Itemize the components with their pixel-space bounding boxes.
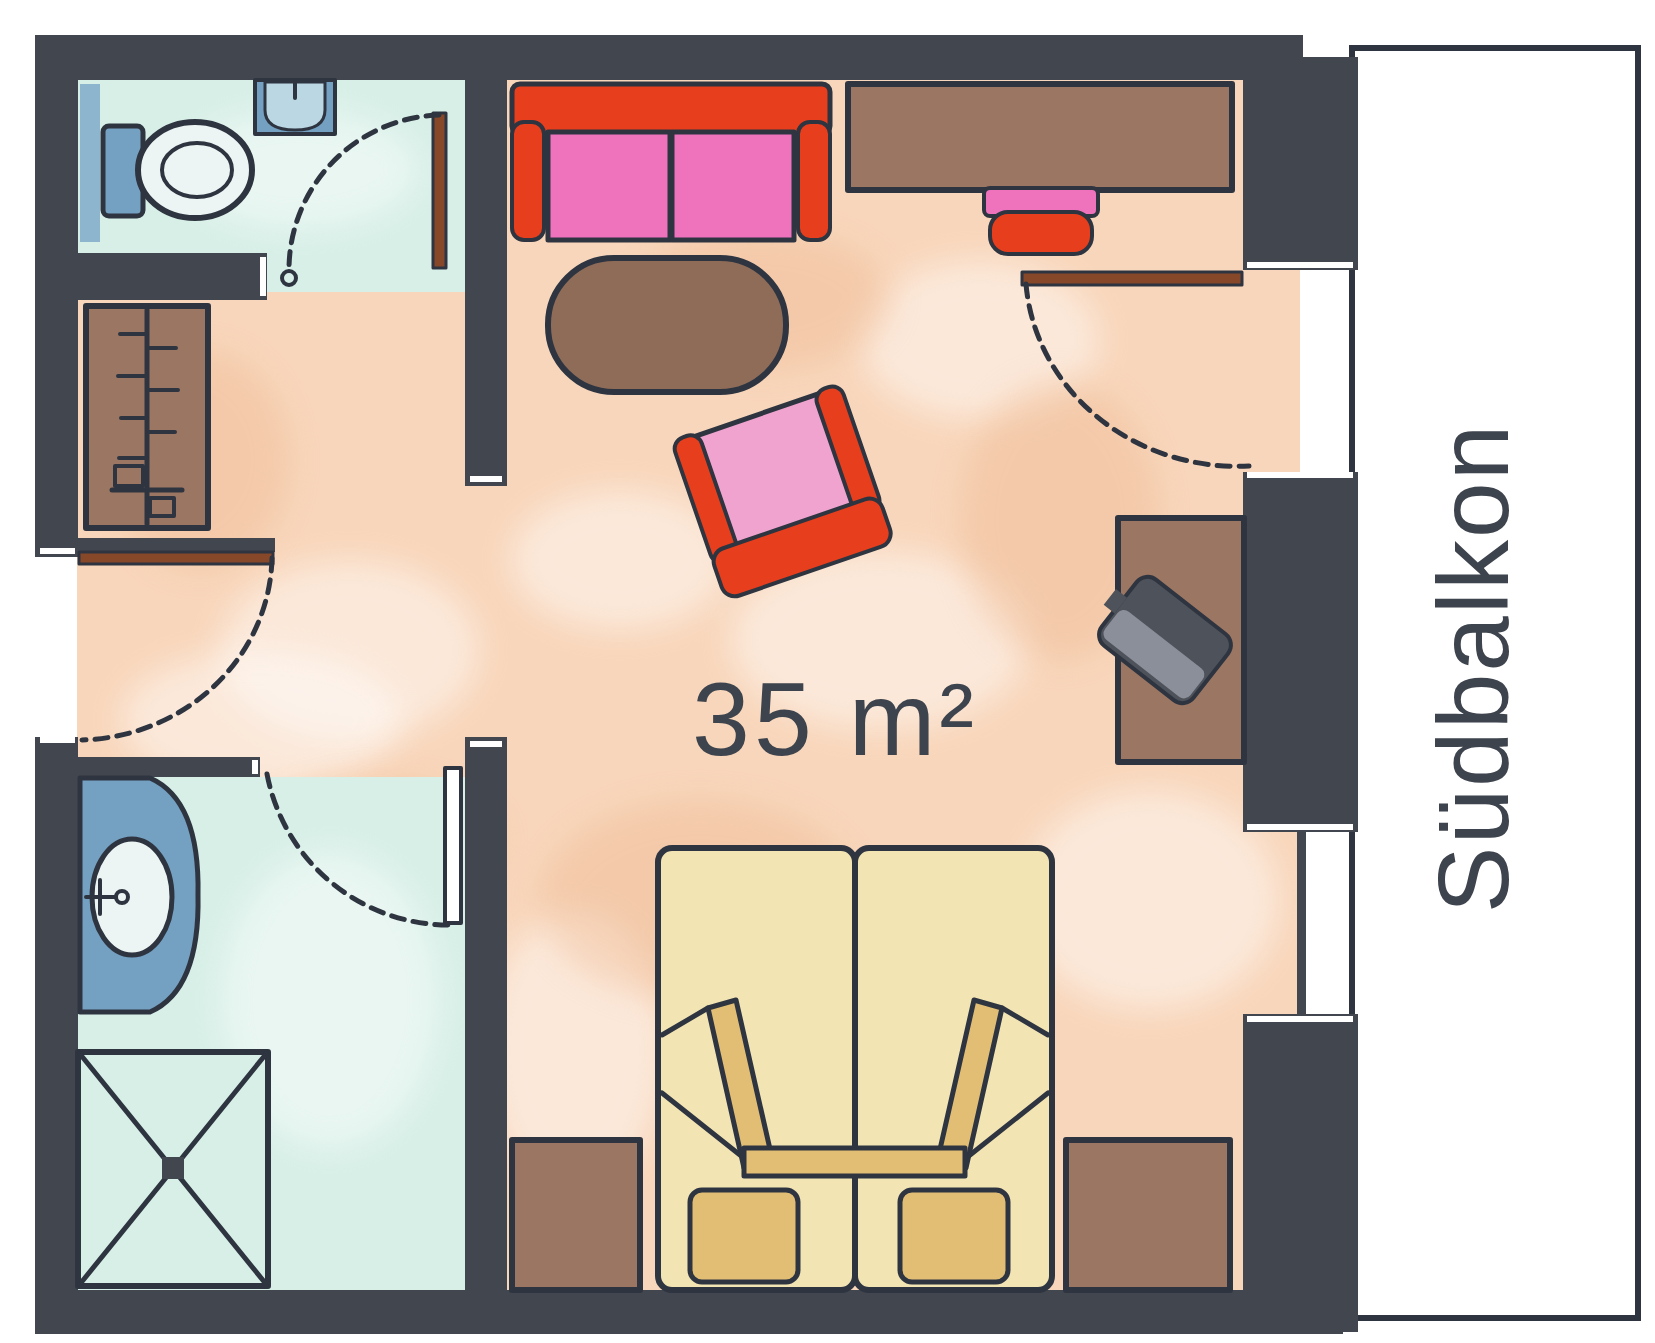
toilet-bowl-inner <box>162 143 232 197</box>
wardrobe <box>86 306 208 528</box>
floorplan-drawing: Südbalkon <box>0 0 1655 1343</box>
floor-highlight <box>1020 790 1280 1010</box>
wall-right-lower <box>1243 1014 1358 1332</box>
door-jamb-slit <box>252 760 258 774</box>
wall-hall-pier-upper <box>465 77 507 486</box>
sofa-cushion-right <box>672 132 794 240</box>
nightstand-left <box>512 1140 640 1290</box>
floorplan-page: Südbalkon <box>0 0 1655 1343</box>
window-line <box>1297 826 1306 1018</box>
door-jamb-slit <box>1247 472 1353 478</box>
wall-below-wardrobe <box>77 538 275 552</box>
wall-hall-pier-lower <box>465 737 507 1294</box>
window-jamb-slit <box>1247 1016 1353 1022</box>
window-jamb-slit <box>1247 824 1353 830</box>
door-jamb-slit <box>470 476 502 482</box>
bathroom-door-leaf <box>445 768 461 923</box>
radiator <box>80 84 100 242</box>
wall-bathroom-top <box>77 757 260 777</box>
wall-right-upper <box>1243 57 1358 270</box>
sofa-armrest-left <box>512 122 544 240</box>
door-jamb-slit <box>40 737 75 743</box>
door-jamb-slit <box>40 548 75 554</box>
blanket-fold-center <box>744 1148 965 1176</box>
double-bed <box>658 848 1052 1290</box>
wall-bottom <box>35 1290 1343 1334</box>
area-label: 35 m² <box>692 661 978 777</box>
entry-door-leaf <box>79 552 273 564</box>
wall-left-lower <box>35 737 78 1334</box>
pillow-left <box>690 1190 798 1282</box>
sofa-back <box>512 84 830 134</box>
nightstand-right <box>1066 1140 1230 1290</box>
door-jamb-slit <box>1247 262 1353 268</box>
balcony-door-leaf <box>1022 272 1242 285</box>
sofa <box>512 84 830 240</box>
desk <box>848 84 1232 190</box>
balcony: Südbalkon <box>1352 48 1638 1318</box>
wall-right-middle <box>1243 472 1358 832</box>
desk-chair-seat <box>990 212 1092 254</box>
rug <box>548 258 786 392</box>
sofa-cushion-left <box>548 132 670 240</box>
wall-top <box>35 35 1303 80</box>
sofa-armrest-right <box>798 122 830 240</box>
door-jamb-slit <box>260 257 266 296</box>
wall-wc-bottom <box>75 253 267 300</box>
balcony-label: Südbalkon <box>1417 423 1529 914</box>
wall-left-upper <box>35 35 78 557</box>
pillow-right <box>900 1190 1008 1282</box>
door-jamb-slit <box>470 741 502 747</box>
shower-drain <box>162 1157 184 1179</box>
wc-door-leaf <box>433 113 446 268</box>
